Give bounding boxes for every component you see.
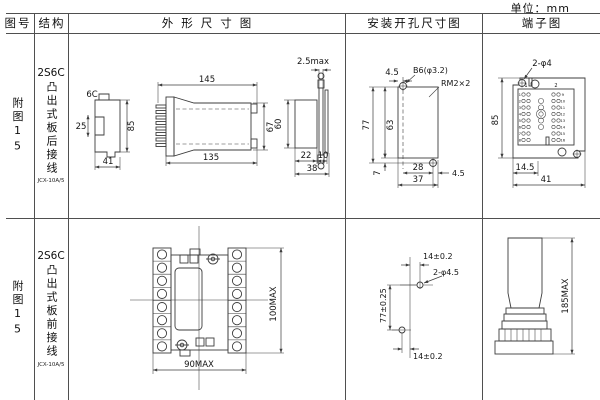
dim-100max: 100MAX xyxy=(269,286,279,321)
view-label: 6C xyxy=(86,90,97,100)
pin-number: 14 xyxy=(560,125,565,130)
row1-relay-code: JCX-10A/5 xyxy=(37,178,64,184)
pin-number: 11 xyxy=(560,105,565,110)
header-fig-no: 图号 xyxy=(0,14,34,33)
dim-185max: 185MAX xyxy=(561,278,571,313)
socket-front-view: 90MAX 100MAX xyxy=(130,226,284,390)
dim-14-top: 14±0.2 xyxy=(423,252,453,261)
dim-10: 10 xyxy=(318,151,329,161)
terminal-holes-label: 2-φ4 xyxy=(532,59,552,69)
dim-135: 135 xyxy=(203,153,219,163)
row1-figure-number: 附图15 xyxy=(9,97,25,155)
row2-outline-drawing: 90MAX 100MAX xyxy=(68,218,345,400)
relay-panel-profile-view: 2.5max 60 22 10 38 xyxy=(274,57,331,177)
row2-model: 2S6C xyxy=(37,250,64,262)
mounting-holes-front: 14±0.2 2-φ4.5 77±0.25 14±0.2 xyxy=(379,252,459,361)
dim-4-5-right: 4.5 xyxy=(452,169,465,178)
terminal-board-rear-view: 2-φ4 1 2 1 2 3 xyxy=(491,59,585,188)
pin-number: 10 xyxy=(560,99,565,104)
dim-41: 41 xyxy=(541,175,552,185)
dim-25: 25 xyxy=(76,122,87,132)
row2-figure-cell: 附图15 xyxy=(0,218,34,400)
dim-7: 7 xyxy=(373,170,383,175)
dim-38: 38 xyxy=(307,164,318,174)
dim-41: 41 xyxy=(103,157,114,167)
pin-number: 1 xyxy=(519,92,522,97)
dim-85: 85 xyxy=(491,115,501,126)
stud-spec-label: RM2×2 xyxy=(441,79,470,88)
row1-figure-cell: 附图15 xyxy=(0,33,34,218)
row2-relay-code: JCX-10A/5 xyxy=(37,362,64,368)
relay-side-view: 145 135 67 xyxy=(156,75,276,166)
relay-front-view: 6C 25 85 41 xyxy=(76,90,137,170)
mounting-screw-top xyxy=(206,254,220,264)
pin-number: 2 xyxy=(519,99,522,104)
row2-terminal-drawing: 185MAX xyxy=(482,218,600,400)
pin-number: 16 xyxy=(560,138,565,143)
dim-14-bottom: 14±0.2 xyxy=(413,352,443,361)
datasheet-page: 单位：mm 图号 结构 外形尺寸图 安装开孔尺寸图 端子图 附图15 2S6C … xyxy=(0,0,600,400)
pin-number: 4 xyxy=(519,112,522,117)
pin-number: 3 xyxy=(519,105,522,110)
row1-mounting-drawing: 4.5 B6(φ3.2) RM2×2 77 63 7 28 4.5 37 xyxy=(345,33,482,218)
hole-spec-label: B6(φ3.2) xyxy=(413,66,448,75)
dim-77: 77 xyxy=(362,120,372,131)
row1-structure-cell: 2S6C 凸出式板后接线 JCX-10A/5 xyxy=(34,33,68,218)
pin-number: 7 xyxy=(519,131,522,136)
header-mounting: 安装开孔尺寸图 xyxy=(345,14,482,33)
mounting-screw-bottom xyxy=(175,340,189,350)
pin-number: 6 xyxy=(519,125,522,130)
pin-number: 9 xyxy=(562,92,565,97)
terminal-col2-label: 2 xyxy=(554,83,557,89)
row2-wiring-type: 凸出式板前接线 xyxy=(43,264,59,359)
row1-model: 2S6C xyxy=(37,67,64,79)
dim-60: 60 xyxy=(274,119,284,130)
dim-37: 37 xyxy=(413,175,424,185)
row2-mounting-drawing: 14±0.2 2-φ4.5 77±0.25 14±0.2 xyxy=(345,218,482,400)
dim-85: 85 xyxy=(127,121,137,132)
mounting-cutout-rear: 4.5 B6(φ3.2) RM2×2 77 63 7 28 4.5 37 xyxy=(362,66,470,188)
holes-spec-label: 2-φ4.5 xyxy=(433,268,459,277)
dim-2-5max: 2.5max xyxy=(297,57,329,67)
header-outline: 外形尺寸图 xyxy=(68,14,345,33)
relay-with-socket-side-view: 185MAX xyxy=(495,238,575,354)
dim-90max: 90MAX xyxy=(184,360,214,370)
terminal-col1-label: 1 xyxy=(524,83,527,89)
pin-number: 5 xyxy=(519,118,522,123)
dim-77: 77±0.25 xyxy=(379,288,388,323)
header-terminal: 端子图 xyxy=(482,14,600,33)
row2-structure-cell: 2S6C 凸出式板前接线 JCX-10A/5 xyxy=(34,218,68,400)
dim-14-5: 14.5 xyxy=(516,163,535,173)
terminal-contact-grid: 1 2 3 4 5 6 7 8 9 10 11 12 13 14 15 16 xyxy=(519,92,566,143)
dim-22: 22 xyxy=(301,151,312,161)
row1-wiring-type: 凸出式板后接线 xyxy=(43,81,59,176)
dim-145: 145 xyxy=(199,75,215,85)
row1-terminal-drawing: 2-φ4 1 2 1 2 3 xyxy=(482,33,600,218)
pin-number: 12 xyxy=(560,112,565,117)
pin-number: 13 xyxy=(560,118,565,123)
dim-28: 28 xyxy=(413,163,424,173)
dim-4-5-top: 4.5 xyxy=(385,68,399,78)
row2-figure-number: 附图15 xyxy=(9,280,25,338)
header-structure: 结构 xyxy=(34,14,68,33)
pin-number: 8 xyxy=(519,138,522,143)
row1-outline-drawing: 6C 25 85 41 145 xyxy=(68,33,345,218)
dim-63: 63 xyxy=(386,120,396,131)
pin-number: 15 xyxy=(560,131,565,136)
